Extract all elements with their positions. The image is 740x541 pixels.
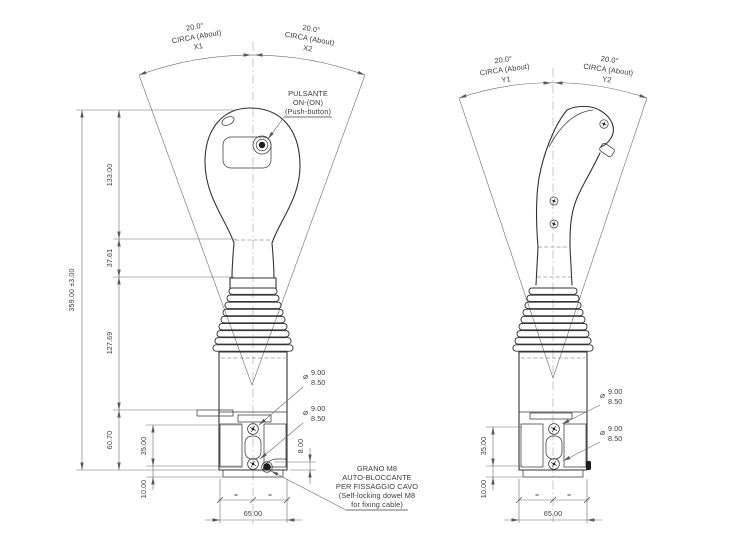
front-angle-left-axis: X1 bbox=[193, 41, 204, 51]
side-dowel-bump bbox=[586, 461, 591, 470]
side-angle-right-label: 20.0° CIRCA (About) Y2 bbox=[581, 52, 635, 88]
side-angle-left-axis: Y1 bbox=[501, 74, 511, 84]
front-angle-right-axis: X2 bbox=[303, 43, 314, 53]
side-screw-grip-2 bbox=[550, 220, 558, 228]
joystick-technical-drawing: 20.0° CIRCA (About) X1 20.0° CIRCA (Abou… bbox=[0, 0, 740, 541]
side-dimensions: 35.00 10.00 = = 65.00 bbox=[479, 427, 602, 523]
side-dim-base-upper: 35.00 bbox=[479, 437, 488, 456]
dim-dowel-offset: 8.00 bbox=[296, 439, 305, 453]
front-side-tab bbox=[197, 410, 233, 416]
side-screw-grip-1 bbox=[550, 197, 558, 205]
dowel-note-line3: PER FISSAGGIO CAVO bbox=[336, 482, 418, 491]
front-angle-right-label: 20.0° CIRCA (About) X2 bbox=[282, 20, 336, 57]
side-hole-callouts: ⌀ 9.00 8.50 ⌀ 9.00 8.50 bbox=[561, 387, 622, 463]
hole-upper-minor: 8.50 bbox=[311, 378, 325, 387]
side-hole-lower-minor: 8.50 bbox=[608, 434, 622, 443]
hole-lower-major: 9.00 bbox=[311, 404, 325, 413]
dowel-note-line5: for fixing cable) bbox=[351, 500, 403, 509]
dowel-note-line1: GRANO M8 bbox=[357, 464, 397, 473]
equal-mark: = bbox=[567, 492, 571, 499]
side-dim-base-lower: 10.00 bbox=[479, 480, 488, 499]
side-dim-base-width: 65.00 bbox=[544, 509, 563, 518]
dowel-note: GRANO M8 AUTO-BLOCCANTE PER FISSAGGIO CA… bbox=[270, 464, 418, 510]
dowel-note-line2: AUTO-BLOCCANTE bbox=[342, 473, 411, 482]
dim-head-height: 133.00 bbox=[105, 164, 114, 187]
diameter-symbol: ⌀ bbox=[303, 371, 308, 381]
side-hole-upper-major: 9.00 bbox=[608, 387, 622, 396]
front-base bbox=[197, 352, 287, 477]
dim-base-width: 65.00 bbox=[244, 509, 263, 518]
side-angle-left-label: 20.0° CIRCA (About) Y1 bbox=[478, 52, 532, 88]
dim-overall-height: 359.00 ±3.00 bbox=[67, 268, 76, 311]
hole-upper-major: 9.00 bbox=[311, 368, 325, 377]
side-base bbox=[519, 352, 591, 477]
side-joystick-outline bbox=[513, 106, 615, 477]
side-hole-upper-minor: 8.50 bbox=[608, 397, 622, 406]
front-view: 20.0° CIRCA (About) X1 20.0° CIRCA (Abou… bbox=[67, 18, 418, 524]
side-view: 20.0° CIRCA (About) Y1 20.0° CIRCA (Abou… bbox=[458, 52, 647, 524]
pushbutton-note-line2: ON-(ON) bbox=[293, 98, 323, 107]
equal-mark: = bbox=[234, 492, 238, 499]
dim-base-upper: 35.00 bbox=[139, 437, 148, 456]
dowel-note-line4: (Self-locking dowel M8 bbox=[339, 491, 416, 500]
diameter-symbol: ⌀ bbox=[303, 407, 308, 417]
front-joystick-outline bbox=[197, 108, 300, 477]
side-button-nub bbox=[599, 142, 616, 157]
drawing-sheet: 20.0° CIRCA (About) X1 20.0° CIRCA (Abou… bbox=[0, 0, 740, 541]
dim-base-lower: 10.00 bbox=[139, 480, 148, 499]
front-travel-fan bbox=[138, 53, 365, 385]
dim-base-height: 60.70 bbox=[105, 431, 114, 450]
front-hole-callouts: ⌀ 9.00 8.50 ⌀ 9.00 8.50 bbox=[258, 368, 326, 460]
pushbutton-note-line1: PULSANTE bbox=[288, 89, 328, 98]
side-screw-upper bbox=[549, 424, 560, 435]
side-screw-head bbox=[600, 120, 608, 128]
diameter-symbol: ⌀ bbox=[600, 427, 605, 437]
pushbutton-note-line3: (Push-button) bbox=[285, 107, 331, 116]
front-angle-left-label: 20.0° CIRCA (About) X1 bbox=[169, 18, 223, 55]
dim-neck-height: 37.61 bbox=[105, 249, 114, 268]
equal-mark: = bbox=[535, 492, 539, 499]
dim-bellows-height: 127.69 bbox=[105, 332, 114, 355]
hole-lower-minor: 8.50 bbox=[311, 414, 325, 423]
diameter-symbol: ⌀ bbox=[600, 390, 605, 400]
side-angle-right-axis: Y2 bbox=[602, 74, 612, 84]
side-hole-lower-major: 9.00 bbox=[608, 424, 622, 433]
side-screw-lower bbox=[549, 459, 560, 470]
equal-mark: = bbox=[268, 492, 272, 499]
